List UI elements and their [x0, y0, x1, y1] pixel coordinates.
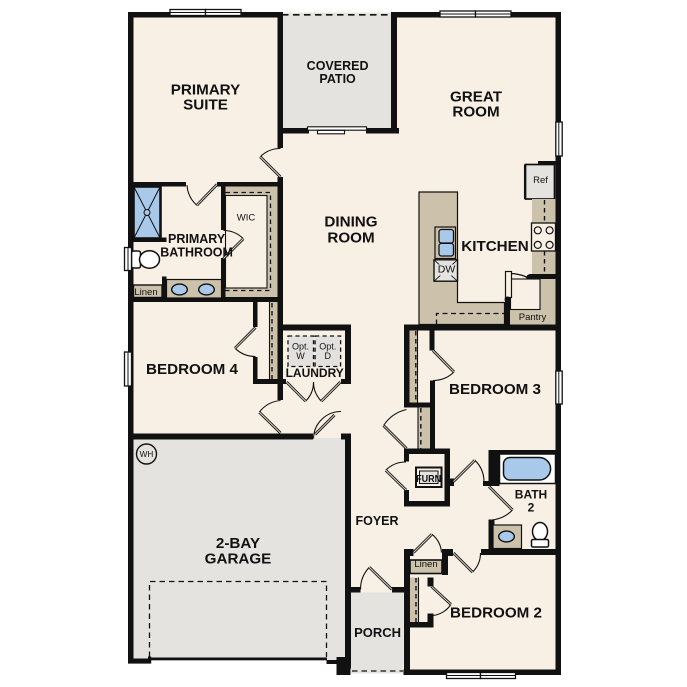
svg-text:2-BAY: 2-BAY — [216, 535, 260, 552]
svg-text:ROOM: ROOM — [327, 230, 374, 247]
svg-text:LAUNDRY: LAUNDRY — [286, 366, 344, 380]
svg-text:BEDROOM 2: BEDROOM 2 — [450, 605, 542, 622]
svg-text:DW: DW — [438, 263, 456, 275]
svg-text:Linen: Linen — [414, 559, 437, 570]
svg-text:Linen: Linen — [134, 287, 157, 298]
svg-text:FOYER: FOYER — [355, 514, 398, 528]
svg-text:ROOM: ROOM — [452, 104, 499, 121]
svg-text:PORCH: PORCH — [354, 625, 401, 640]
svg-text:KITCHEN: KITCHEN — [461, 238, 529, 255]
svg-text:BEDROOM 4: BEDROOM 4 — [146, 361, 239, 378]
svg-text:PATIO: PATIO — [319, 72, 356, 86]
svg-text:GARAGE: GARAGE — [205, 551, 272, 568]
svg-text:WH: WH — [140, 450, 154, 459]
svg-text:BATH: BATH — [515, 487, 547, 501]
svg-text:W: W — [296, 351, 305, 361]
svg-text:WIC: WIC — [237, 213, 256, 224]
svg-text:Pantry: Pantry — [519, 312, 547, 323]
svg-text:BATHROOM: BATHROOM — [160, 246, 233, 260]
svg-text:2: 2 — [528, 501, 535, 515]
svg-text:DINING: DINING — [324, 214, 377, 231]
svg-text:BEDROOM 3: BEDROOM 3 — [449, 381, 541, 398]
svg-text:Ref: Ref — [533, 175, 548, 186]
svg-text:FURN: FURN — [416, 474, 441, 485]
svg-text:PRIMARY: PRIMARY — [168, 232, 226, 246]
svg-text:D: D — [325, 351, 332, 361]
svg-text:SUITE: SUITE — [183, 97, 228, 114]
svg-text:COVERED: COVERED — [307, 59, 369, 73]
